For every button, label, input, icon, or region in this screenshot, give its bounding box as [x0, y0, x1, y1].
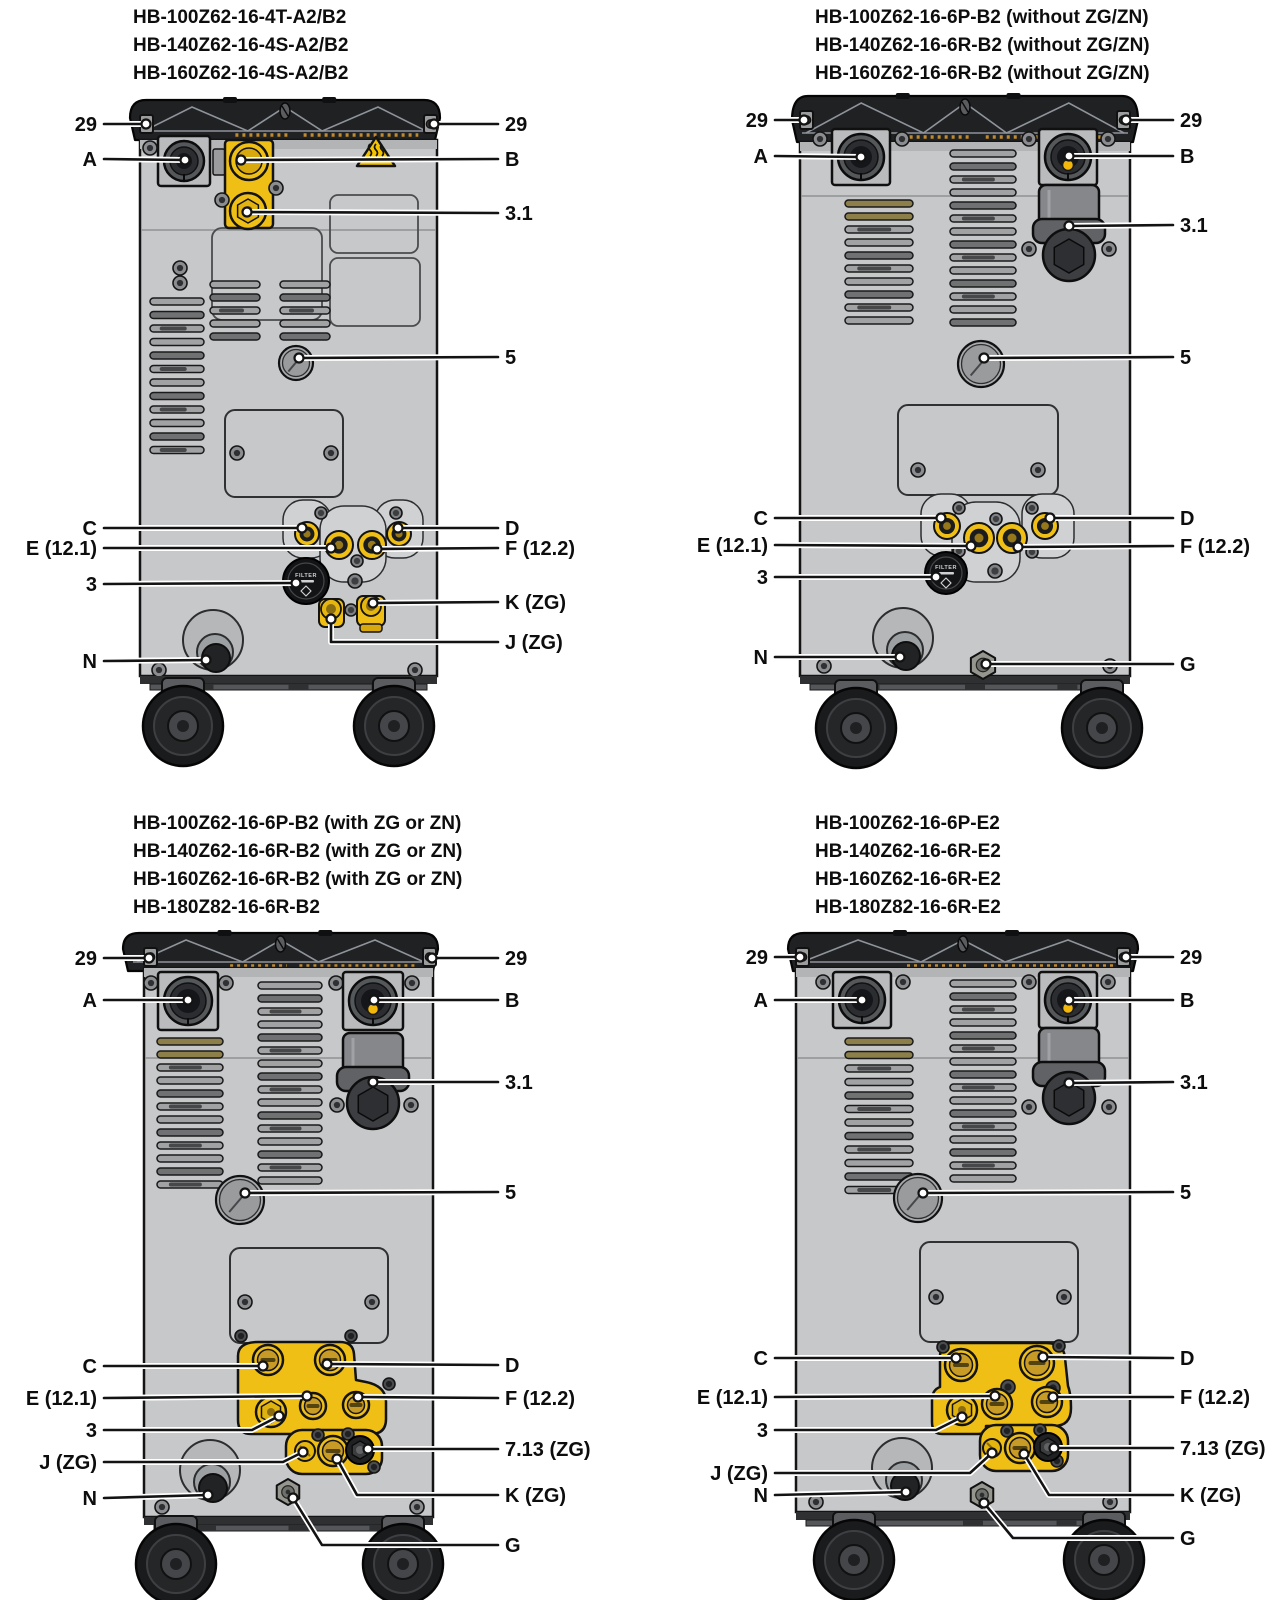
callout-label: A [754, 146, 768, 168]
screw [173, 276, 187, 290]
callout-label: B [1180, 990, 1194, 1012]
leader-dot [430, 120, 439, 129]
callout-label: 3.1 [505, 203, 533, 225]
machine-diagram-top-left: HB-100Z62-16-4T-A2/B2HB-140Z62-16-4S-A2/… [0, 0, 640, 790]
screw [269, 181, 283, 195]
panel-title-line: HB-140Z62-16-6R-B2 (with ZG or ZN) [133, 841, 462, 862]
leader-line [984, 357, 1173, 358]
leader-dot [289, 1494, 298, 1503]
grommet [351, 555, 363, 567]
leader-dot [1014, 543, 1023, 552]
leader-line [247, 212, 498, 213]
grommet [937, 1341, 949, 1353]
leader-line [923, 1192, 1173, 1193]
callout-label: 3 [86, 1420, 97, 1442]
leader-line [373, 602, 498, 603]
panel-title-line: HB-160Z62-16-4S-A2/B2 [133, 63, 348, 84]
leader-dot [369, 1078, 378, 1087]
screw [813, 132, 827, 146]
leader-line [245, 1192, 498, 1193]
leader-dot [142, 120, 151, 129]
callout-label: 29 [746, 947, 768, 969]
screw [1102, 1100, 1116, 1114]
leader-dot [1065, 1079, 1074, 1088]
port-d [1020, 1346, 1054, 1380]
callout-label: J (ZG) [710, 1463, 768, 1485]
callout-label: D [505, 518, 519, 540]
top-cap [123, 930, 438, 971]
panel-title-line: HB-160Z62-16-6R-E2 [815, 869, 1001, 890]
screw [895, 132, 909, 146]
cap-center-screw [958, 936, 968, 952]
panel-title-line: HB-100Z62-16-4T-A2/B2 [133, 7, 346, 28]
callout-label: 29 [505, 114, 527, 136]
callout-label: C [754, 1348, 768, 1370]
leader-line [327, 1364, 498, 1365]
grommet [345, 1330, 357, 1342]
screw [929, 1290, 943, 1304]
screw [215, 193, 229, 207]
callout-label: 5 [505, 347, 516, 369]
cap-center-screw [960, 99, 970, 115]
cap-center-screw [276, 936, 286, 952]
panel-title-line: HB-140Z62-16-6R-E2 [815, 841, 1001, 862]
screw [173, 261, 187, 275]
callout-label: N [83, 1488, 97, 1510]
callout-label: B [505, 149, 519, 171]
panel-title-line: HB-140Z62-16-6R-B2 (without ZG/ZN) [815, 35, 1150, 56]
callout-label: 7.13 (ZG) [505, 1439, 591, 1461]
cap-center-screw [280, 103, 290, 119]
screw [238, 1295, 252, 1309]
callout-label: J (ZG) [505, 632, 563, 654]
screw [1057, 1290, 1071, 1304]
caster-wheel [1062, 680, 1142, 768]
callout-label: G [1180, 1528, 1196, 1550]
callout-label: 7.13 (ZG) [1180, 1438, 1266, 1460]
grommet [390, 507, 402, 519]
leader-dot [298, 524, 307, 533]
leader-dot [896, 653, 905, 662]
leader-dot [243, 208, 252, 217]
screw [1022, 975, 1036, 989]
leader-dot [241, 1189, 250, 1198]
callout-29: 29 [430, 114, 528, 136]
panel-title-line: HB-100Z62-16-6P-E2 [815, 813, 1000, 834]
callout-label: F (12.2) [505, 1388, 575, 1410]
callout-label: E (12.1) [26, 538, 97, 560]
panel-bottom-right: HB-100Z62-16-6P-E2HB-140Z62-16-6R-E2HB-1… [640, 790, 1280, 1600]
callout-label: A [754, 990, 768, 1012]
leader-line [775, 156, 861, 157]
screw [911, 463, 925, 477]
screw [330, 1098, 344, 1112]
screw [1031, 463, 1045, 477]
grommet [988, 564, 1002, 578]
diagram-stage: HB-100Z62-16-4T-A2/B2HB-140Z62-16-4S-A2/… [0, 0, 1280, 1600]
screw [1022, 132, 1036, 146]
callout-label: F (12.2) [505, 538, 575, 560]
leader-dot [1039, 1353, 1048, 1362]
grommet [1053, 1340, 1065, 1352]
port-c [253, 1345, 283, 1375]
leader-line [1069, 1082, 1173, 1083]
leader-dot [237, 156, 246, 165]
screw [896, 975, 910, 989]
panel-title: HB-100Z62-16-6P-B2 (without ZG/ZN)HB-140… [815, 7, 1150, 84]
screw [324, 446, 338, 460]
callout-label: 29 [746, 110, 768, 132]
top-cap [130, 97, 440, 140]
leader-dot [1050, 1444, 1059, 1453]
grommet [953, 502, 965, 514]
leader-dot [364, 1445, 373, 1454]
callout-label: D [1180, 508, 1194, 530]
callout-29: 29 [428, 948, 528, 970]
callout-label: K (ZG) [505, 592, 566, 614]
screw [1022, 1100, 1036, 1114]
panel-title-line: HB-100Z62-16-6P-B2 (without ZG/ZN) [815, 7, 1149, 28]
filter-knob-3: FILTER [925, 552, 967, 594]
callout-label: 5 [1180, 347, 1191, 369]
screw [404, 1098, 418, 1112]
leader-dot [937, 514, 946, 523]
screw [143, 141, 157, 155]
leader-dot [1049, 1393, 1058, 1402]
callout-label: K (ZG) [505, 1485, 566, 1507]
callout-label: D [505, 1355, 519, 1377]
screw [1022, 242, 1036, 256]
leader-dot [303, 1392, 312, 1401]
grommet [315, 507, 327, 519]
callout-label: 29 [75, 114, 97, 136]
leader-dot [858, 996, 867, 1005]
leader-dot [181, 156, 190, 165]
callout-label: D [1180, 1348, 1194, 1370]
callout-label: 3.1 [1180, 1072, 1208, 1094]
leader-dot [800, 116, 809, 125]
callout-label: N [754, 647, 768, 669]
leader-dot [323, 1360, 332, 1369]
leader-line [775, 545, 971, 546]
leader-dot [295, 354, 304, 363]
leader-dot [184, 996, 193, 1005]
callout-label: 29 [1180, 110, 1202, 132]
leader-dot [982, 660, 991, 669]
top-cap [788, 930, 1138, 971]
callout-label: K (ZG) [1180, 1485, 1241, 1507]
port-c [945, 1349, 977, 1381]
leader-line [377, 548, 498, 549]
callout-label: 5 [505, 1182, 516, 1204]
leader-line [358, 1397, 498, 1398]
leader-dot [369, 599, 378, 608]
leader-dot [275, 1412, 284, 1421]
screw [410, 1500, 424, 1514]
leader-dot [857, 153, 866, 162]
panel-title-line: HB-180Z82-16-6R-E2 [815, 897, 1001, 918]
leader-dot [373, 545, 382, 554]
grommet [348, 574, 362, 588]
callout-label: B [505, 990, 519, 1012]
callout-label: A [83, 149, 97, 171]
screw [329, 976, 343, 990]
callout-label: 3 [86, 574, 97, 596]
leader-line [104, 159, 185, 160]
leader-dot [1065, 152, 1074, 161]
leader-dot [988, 1449, 997, 1458]
svg-text:FILTER: FILTER [935, 565, 957, 571]
leader-line [104, 660, 206, 661]
leader-dot [1122, 953, 1131, 962]
screw [152, 663, 166, 677]
callout-label: E (12.1) [697, 535, 768, 557]
screw [405, 976, 419, 990]
panel-title-line: HB-160Z62-16-6R-B2 (with ZG or ZN) [133, 869, 462, 890]
leader-line [1043, 1357, 1173, 1358]
grommet [1026, 502, 1038, 514]
gauge-5 [958, 341, 1004, 387]
leader-dot [202, 656, 211, 665]
machine-diagram-bottom-right: HB-100Z62-16-6P-E2HB-140Z62-16-6R-E2HB-1… [640, 790, 1280, 1600]
panel-top-left: HB-100Z62-16-4T-A2/B2HB-140Z62-16-4S-A2/… [0, 0, 640, 790]
leader-dot [299, 1448, 308, 1457]
leader-dot [967, 542, 976, 551]
callout-label: G [1180, 654, 1196, 676]
leader-dot [991, 1392, 1000, 1401]
gauge-5 [279, 346, 313, 380]
callout-label: F (12.2) [1180, 1387, 1250, 1409]
callout-label: B [1180, 146, 1194, 168]
port-k [1005, 1433, 1035, 1463]
callout-label: A [83, 990, 97, 1012]
screw [144, 976, 158, 990]
leader-dot [932, 573, 941, 582]
gauge-5 [216, 1176, 264, 1224]
leader-dot [1065, 996, 1074, 1005]
callout-label: C [83, 1356, 97, 1378]
leader-dot [327, 544, 336, 553]
port-f [358, 531, 386, 559]
callout-label: 3 [757, 1420, 768, 1442]
leader-dot [327, 615, 336, 624]
panel-title-line: HB-160Z62-16-6R-B2 (without ZG/ZN) [815, 63, 1150, 84]
leader-dot [796, 953, 805, 962]
leader-dot [902, 1488, 911, 1497]
panel-title: HB-100Z62-16-6P-B2 (with ZG or ZN)HB-140… [133, 813, 462, 918]
screw [1101, 132, 1115, 146]
leader-dot [1065, 222, 1074, 231]
panel-title-line: HB-100Z62-16-6P-B2 (with ZG or ZN) [133, 813, 461, 834]
grommet [383, 1378, 395, 1390]
leader-line [104, 583, 296, 584]
leader-line [241, 159, 498, 160]
screw [816, 975, 830, 989]
leader-dot [204, 1491, 213, 1500]
callout-label: G [505, 1535, 521, 1557]
callout-label: 29 [1180, 947, 1202, 969]
machine-diagram-top-right: HB-100Z62-16-6P-B2 (without ZG/ZN)HB-140… [640, 0, 1280, 790]
leader-line [775, 1396, 995, 1397]
callout-label: 29 [75, 948, 97, 970]
callout-label: 3.1 [1180, 215, 1208, 237]
caster-wheel [143, 678, 223, 766]
screw [408, 663, 422, 677]
screw [1102, 242, 1116, 256]
screw [155, 1500, 169, 1514]
leader-dot [1046, 514, 1055, 523]
panel-top-right: HB-100Z62-16-6P-B2 (without ZG/ZN)HB-140… [640, 0, 1280, 790]
grommet [235, 1330, 247, 1342]
leader-dot [292, 579, 301, 588]
screw [219, 976, 233, 990]
leader-dot [428, 954, 437, 963]
leader-dot [1122, 116, 1131, 125]
screw [817, 659, 831, 673]
callout-label: 3.1 [505, 1072, 533, 1094]
panel-title-line: HB-140Z62-16-4S-A2/B2 [133, 35, 348, 56]
callout-label: 5 [1180, 1182, 1191, 1204]
port-f [1032, 1387, 1062, 1417]
callout-label: N [754, 1485, 768, 1507]
screw [230, 446, 244, 460]
leader-dot [354, 1393, 363, 1402]
leader-dot [952, 1354, 961, 1363]
panel-title-line: HB-180Z82-16-6R-B2 [133, 897, 320, 918]
grommet [368, 1461, 380, 1473]
leader-dot [259, 1362, 268, 1371]
callout-label: N [83, 651, 97, 673]
leader-dot [980, 1499, 989, 1508]
leader-dot [958, 1413, 967, 1422]
callout-label: C [754, 508, 768, 530]
panel-bottom-left: HB-100Z62-16-6P-B2 (with ZG or ZN)HB-140… [0, 790, 640, 1600]
callout-label: E (12.1) [26, 1388, 97, 1410]
leader-dot [919, 1189, 928, 1198]
leader-line [1018, 546, 1173, 547]
leader-line [1069, 225, 1173, 226]
callout-label: F (12.2) [1180, 536, 1250, 558]
leader-line [299, 357, 498, 358]
grommet [990, 513, 1002, 525]
panel-title: HB-100Z62-16-6P-E2HB-140Z62-16-6R-E2HB-1… [815, 813, 1001, 918]
caster-wheel [354, 678, 434, 766]
leader-dot [980, 354, 989, 363]
leader-dot [1020, 1450, 1029, 1459]
screw [365, 1295, 379, 1309]
callout-label: E (12.1) [697, 1387, 768, 1409]
leader-dot [394, 524, 403, 533]
panel-title: HB-100Z62-16-4T-A2/B2HB-140Z62-16-4S-A2/… [133, 7, 348, 84]
machine-diagram-bottom-left: HB-100Z62-16-6P-B2 (with ZG or ZN)HB-140… [0, 790, 640, 1600]
callout-label: J (ZG) [39, 1452, 97, 1474]
callout-label: C [83, 518, 97, 540]
caster-wheel [816, 680, 896, 768]
leader-dot [333, 1455, 342, 1464]
leader-dot [145, 954, 154, 963]
screw [1101, 975, 1115, 989]
callout-label: 29 [505, 948, 527, 970]
callout-label: 3 [757, 567, 768, 589]
grommet [345, 604, 357, 616]
gauge-5 [894, 1174, 942, 1222]
leader-dot [370, 996, 379, 1005]
